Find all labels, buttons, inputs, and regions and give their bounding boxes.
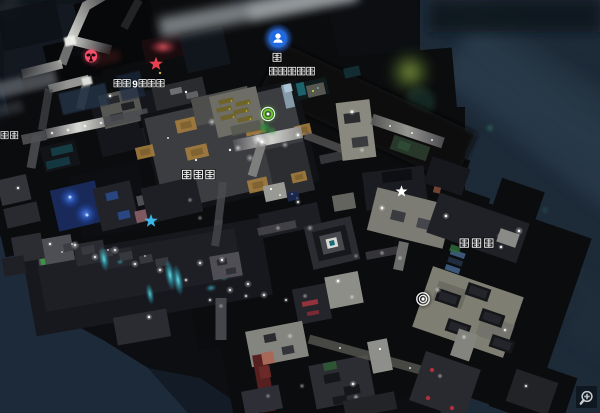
svg-text:9: 9 [132, 79, 138, 90]
